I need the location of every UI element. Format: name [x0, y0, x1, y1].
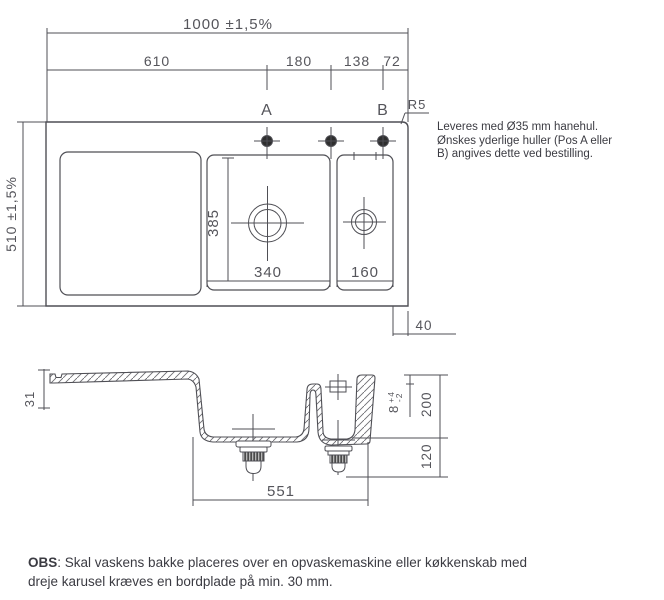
dim-front-height	[38, 369, 50, 410]
note-line: Ønskes yderlige huller (Pos A eller	[437, 135, 663, 149]
small-drain-top	[343, 197, 386, 249]
dim-rim-height-label: 8+4-2	[386, 391, 404, 413]
technical-drawing: 1000 ±1,5% 610 180 138 72 A B R5	[0, 0, 664, 545]
pos-b-label: B	[377, 102, 389, 119]
dim-small-bowl-width-label: 160	[351, 264, 379, 281]
section-shell	[50, 371, 375, 445]
mounting-hole-middle	[318, 127, 344, 159]
obs-note: OBS: Skal vaskens bakke placeres over en…	[28, 553, 550, 591]
dim-drain-depth-label: 120	[419, 443, 434, 469]
dim-front-height-label: 31	[22, 391, 37, 407]
dim-bowl-width-label: 340	[254, 264, 282, 281]
small-drain-section	[322, 420, 355, 475]
dim-seg-180-label: 180	[286, 53, 312, 69]
main-drain-section	[232, 414, 275, 481]
note-line: B) angives dette ved bestilling.	[437, 148, 663, 162]
corner-radius-label: R5	[408, 97, 427, 112]
dim-total-depth	[17, 122, 46, 306]
dim-edge-offset-label: 40	[415, 318, 432, 333]
dim-seg-610-label: 610	[144, 53, 170, 69]
section-view: 31 8+4-2 200 120	[22, 369, 448, 506]
dim-depth-200-label: 200	[419, 391, 434, 417]
mounting-hole-a	[254, 127, 280, 159]
drainboard-outline	[60, 152, 201, 295]
dim-total-width-label: 1000 ±1,5%	[183, 16, 273, 33]
dim-rim-height	[406, 375, 414, 417]
mounting-hole-b	[370, 127, 396, 159]
dim-bowl-depth-label: 385	[205, 209, 222, 237]
overflow-fitting	[325, 374, 352, 400]
dim-seg-72-label: 72	[383, 53, 401, 69]
dim-depth-200	[434, 375, 446, 438]
main-drain-top	[231, 186, 304, 261]
pos-a-label: A	[261, 102, 273, 119]
dim-bowl-depth	[222, 158, 234, 281]
dim-total-width	[47, 28, 408, 122]
dim-seg-138-label: 138	[344, 53, 370, 69]
dim-drain-depth	[434, 438, 446, 477]
obs-body: : Skal vaskens bakke placeres over en op…	[28, 555, 527, 589]
spec-sheet-page: 1000 ±1,5% 610 180 138 72 A B R5	[0, 0, 664, 600]
dim-bowl-span-label: 551	[267, 483, 295, 500]
note-line: Leveres med Ø35 mm hanehul.	[437, 121, 663, 135]
dim-total-depth-label: 510 ±1,5%	[3, 176, 19, 252]
tap-hole-note: Leveres med Ø35 mm hanehul. Ønskes yderl…	[437, 121, 663, 162]
top-view: 1000 ±1,5% 610 180 138 72 A B R5	[3, 16, 456, 336]
obs-label: OBS	[28, 555, 57, 570]
